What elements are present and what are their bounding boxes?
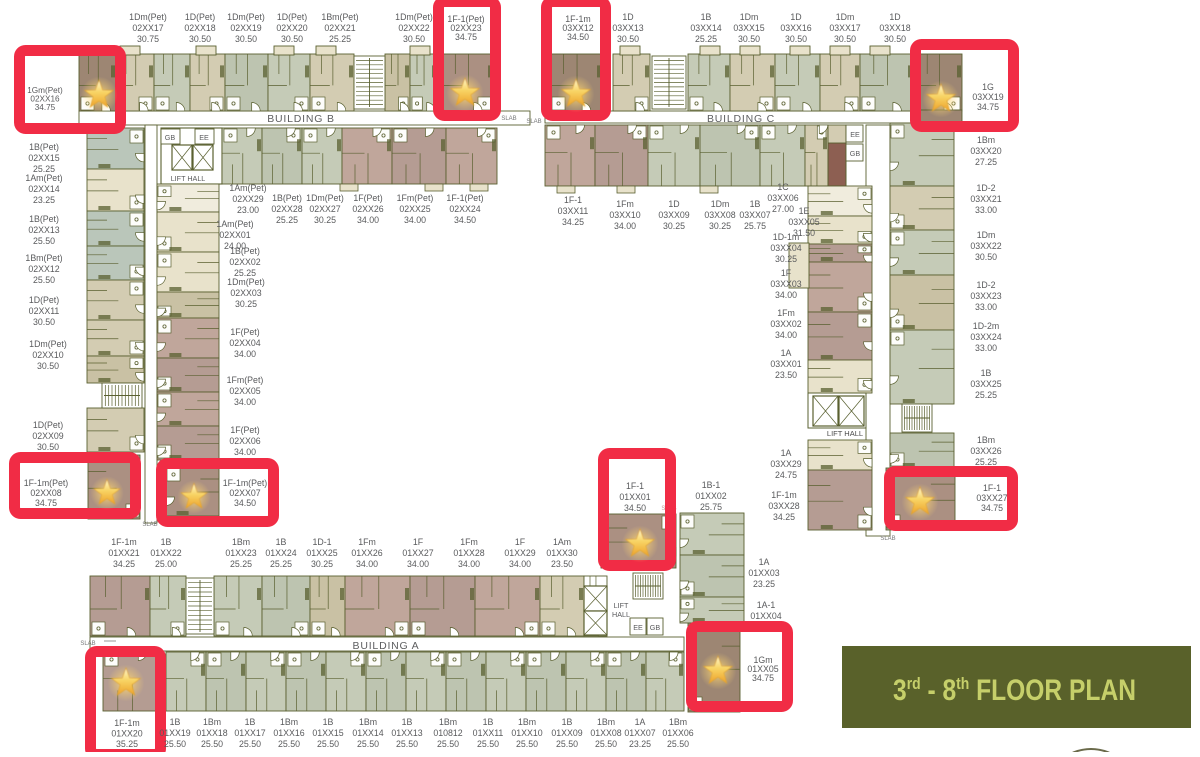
svg-text:1D(Pet): 1D(Pet) [185,12,215,22]
svg-text:25.25: 25.25 [270,559,292,569]
svg-text:02XX19: 02XX19 [230,23,261,33]
svg-text:03XX07: 03XX07 [739,210,770,220]
svg-text:1F(Pet): 1F(Pet) [230,425,259,435]
svg-text:30.50: 30.50 [281,34,303,44]
svg-text:25.50: 25.50 [33,275,55,285]
svg-text:34.00: 34.00 [234,447,256,457]
svg-text:1Bm(Pet): 1Bm(Pet) [321,12,358,22]
svg-text:1G: 1G [982,82,994,92]
svg-text:30.50: 30.50 [884,34,906,44]
svg-text:1F: 1F [515,537,526,547]
svg-text:EE: EE [850,130,860,139]
svg-text:1Bm: 1Bm [597,717,615,727]
svg-text:34.75: 34.75 [35,498,57,508]
svg-text:03XX13: 03XX13 [612,23,643,33]
svg-text:25.50: 25.50 [33,236,55,246]
svg-text:1Bm: 1Bm [203,717,221,727]
svg-text:25.50: 25.50 [556,739,578,749]
svg-text:01XX20: 01XX20 [111,729,142,739]
svg-text:25.50: 25.50 [278,739,300,749]
svg-text:02XX05: 02XX05 [229,386,260,396]
svg-text:30.25: 30.25 [311,559,333,569]
svg-text:3rd - 8th FLOOR PLAN: 3rd - 8th FLOOR PLAN [893,673,1136,707]
svg-text:03XX22: 03XX22 [970,241,1001,251]
svg-text:03XX16: 03XX16 [780,23,811,33]
svg-text:1Am(Pet): 1Am(Pet) [229,183,266,193]
svg-text:1Dm: 1Dm [977,230,996,240]
svg-text:1Am(Pet): 1Am(Pet) [25,173,62,183]
svg-text:LIFT HALL: LIFT HALL [171,174,206,183]
svg-text:BUILDING C: BUILDING C [707,113,775,125]
svg-text:02XX09: 02XX09 [32,431,63,441]
svg-text:1D: 1D [790,12,801,22]
svg-text:01XX30: 01XX30 [546,548,577,558]
svg-text:1Dm(Pet): 1Dm(Pet) [227,277,265,287]
svg-text:1Dm(Pet): 1Dm(Pet) [306,193,344,203]
svg-text:30.25: 30.25 [235,299,257,309]
svg-text:1F-1m(Pet): 1F-1m(Pet) [24,478,69,488]
svg-text:34.00: 34.00 [509,559,531,569]
svg-text:1F-1: 1F-1 [626,481,644,491]
svg-text:03XX08: 03XX08 [704,210,735,220]
svg-text:34.00: 34.00 [356,559,378,569]
svg-text:1Fm(Pet): 1Fm(Pet) [397,193,434,203]
svg-text:1D-2m: 1D-2m [973,321,999,331]
svg-text:25.50: 25.50 [667,739,689,749]
svg-text:01XX22: 01XX22 [150,548,181,558]
svg-text:1Dm(Pet): 1Dm(Pet) [227,12,265,22]
svg-text:1Bm: 1Bm [518,717,536,727]
svg-text:1Bm: 1Bm [439,717,457,727]
svg-text:01XX04: 01XX04 [750,611,781,621]
svg-text:25.50: 25.50 [396,739,418,749]
svg-text:1A: 1A [781,448,792,458]
svg-text:1B: 1B [701,12,712,22]
svg-text:02XX22: 02XX22 [398,23,429,33]
svg-text:01XX26: 01XX26 [351,548,382,558]
svg-text:34.50: 34.50 [567,32,589,42]
svg-text:34.00: 34.00 [614,221,636,231]
svg-text:1D-1m: 1D-1m [773,232,799,242]
svg-text:02XX12: 02XX12 [28,264,59,274]
svg-text:34.25: 34.25 [773,512,795,522]
svg-text:1B-1: 1B-1 [702,480,721,490]
svg-text:1A-1: 1A-1 [757,600,776,610]
svg-text:1B: 1B [750,199,761,209]
svg-text:23.50: 23.50 [551,559,573,569]
svg-text:01XX14: 01XX14 [352,728,383,738]
svg-text:02XX13: 02XX13 [28,225,59,235]
svg-text:03XX03: 03XX03 [770,279,801,289]
svg-text:33.00: 33.00 [975,343,997,353]
svg-text:27.25: 27.25 [975,157,997,167]
svg-text:03XX10: 03XX10 [609,210,640,220]
svg-text:1Dm: 1Dm [711,199,730,209]
svg-text:01XX18: 01XX18 [196,728,227,738]
svg-text:34.50: 34.50 [234,498,256,508]
svg-text:30.25: 30.25 [775,254,797,264]
svg-text:1B(Pet): 1B(Pet) [230,246,260,256]
svg-text:1F-1m(Pet): 1F-1m(Pet) [223,478,268,488]
svg-text:35.25: 35.25 [116,739,138,749]
svg-text:1Bm: 1Bm [280,717,298,727]
svg-text:02XX07: 02XX07 [229,488,260,498]
svg-text:25.50: 25.50 [477,739,499,749]
svg-text:34.00: 34.00 [234,397,256,407]
svg-text:1D: 1D [889,12,900,22]
svg-text:02XX20: 02XX20 [276,23,307,33]
svg-text:03XX21: 03XX21 [970,194,1001,204]
svg-text:1D(Pet): 1D(Pet) [29,295,59,305]
svg-text:23.25: 23.25 [33,195,55,205]
svg-text:EE: EE [633,623,643,632]
svg-text:34.00: 34.00 [775,330,797,340]
svg-text:25.50: 25.50 [516,739,538,749]
svg-text:1F-1: 1F-1 [564,195,582,205]
svg-text:01XX08: 01XX08 [590,728,621,738]
svg-text:01XX07: 01XX07 [624,728,655,738]
svg-text:30.50: 30.50 [617,34,639,44]
svg-text:30.50: 30.50 [738,34,760,44]
svg-text:1D: 1D [622,12,633,22]
svg-text:03XX05: 03XX05 [788,217,819,227]
svg-text:1B(Pet): 1B(Pet) [29,142,59,152]
svg-text:1B: 1B [276,537,287,547]
svg-text:1Fm: 1Fm [616,199,634,209]
svg-text:02XX29: 02XX29 [232,194,263,204]
svg-text:25.00: 25.00 [155,559,177,569]
svg-text:25.75: 25.75 [700,502,722,512]
svg-text:25.75: 25.75 [744,221,766,231]
svg-text:1B: 1B [170,717,181,727]
svg-text:02XX14: 02XX14 [28,184,59,194]
svg-text:25.50: 25.50 [164,739,186,749]
svg-text:01XX10: 01XX10 [511,728,542,738]
svg-text:02XX15: 02XX15 [28,153,59,163]
svg-text:30.50: 30.50 [785,34,807,44]
svg-text:25.50: 25.50 [437,739,459,749]
svg-text:1Fm: 1Fm [460,537,478,547]
svg-text:1Fm(Pet): 1Fm(Pet) [227,375,264,385]
svg-text:02XX08: 02XX08 [30,488,61,498]
svg-text:1Dm(Pet): 1Dm(Pet) [29,339,67,349]
svg-text:33.00: 33.00 [975,205,997,215]
svg-text:01XX16: 01XX16 [273,728,304,738]
svg-text:03XX19: 03XX19 [972,92,1003,102]
svg-text:27.00: 27.00 [772,204,794,214]
svg-text:01XX02: 01XX02 [695,491,726,501]
svg-text:34.25: 34.25 [562,217,584,227]
svg-text:30.25: 30.25 [663,221,685,231]
svg-text:03XX02: 03XX02 [770,319,801,329]
svg-text:02XX24: 02XX24 [449,204,480,214]
svg-text:1Bm: 1Bm [359,717,377,727]
svg-text:1B: 1B [323,717,334,727]
svg-text:25.25: 25.25 [975,390,997,400]
svg-text:25.25: 25.25 [230,559,252,569]
svg-text:02XX10: 02XX10 [32,350,63,360]
svg-text:30.25: 30.25 [314,215,336,225]
svg-text:1C: 1C [777,182,789,192]
svg-text:25.50: 25.50 [239,739,261,749]
svg-text:25.50: 25.50 [317,739,339,749]
svg-text:30.50: 30.50 [37,442,59,452]
svg-text:01XX29: 01XX29 [504,548,535,558]
svg-text:01XX13: 01XX13 [391,728,422,738]
svg-text:1Am: 1Am [553,537,571,547]
svg-text:1F-1(Pet): 1F-1(Pet) [446,193,483,203]
svg-text:010812: 010812 [433,728,462,738]
svg-text:01XX06: 01XX06 [662,728,693,738]
svg-text:1Dm(Pet): 1Dm(Pet) [395,12,433,22]
svg-text:02XX27: 02XX27 [309,204,340,214]
svg-text:03XX11: 03XX11 [558,206,589,216]
svg-text:03XX17: 03XX17 [829,23,860,33]
svg-text:01XX09: 01XX09 [551,728,582,738]
svg-text:1B: 1B [245,717,256,727]
svg-text:01XX19: 01XX19 [159,728,190,738]
svg-text:02XX06: 02XX06 [229,436,260,446]
svg-text:1F-1: 1F-1 [983,483,1001,493]
svg-text:01XX01: 01XX01 [619,492,650,502]
svg-text:03XX20: 03XX20 [970,146,1001,156]
svg-text:01XX03: 01XX03 [748,568,779,578]
svg-text:30.50: 30.50 [189,34,211,44]
svg-text:25.25: 25.25 [276,215,298,225]
svg-text:02XX11: 02XX11 [29,306,60,316]
svg-text:03XX27: 03XX27 [976,493,1007,503]
svg-text:30.50: 30.50 [37,361,59,371]
svg-text:01XX24: 01XX24 [265,548,296,558]
svg-text:03XX06: 03XX06 [767,193,798,203]
svg-text:23.25: 23.25 [629,739,651,749]
svg-text:1B: 1B [562,717,573,727]
svg-text:02XX18: 02XX18 [184,23,215,33]
svg-text:LIFT: LIFT [614,601,629,610]
svg-text:23.25: 23.25 [753,579,775,589]
svg-text:1D(Pet): 1D(Pet) [277,12,307,22]
svg-text:1A: 1A [635,717,646,727]
svg-text:02XX25: 02XX25 [399,204,430,214]
svg-text:34.75: 34.75 [977,102,999,112]
svg-text:24.75: 24.75 [775,470,797,480]
svg-text:1F: 1F [413,537,424,547]
svg-text:34.25: 34.25 [113,559,135,569]
svg-text:03XX09: 03XX09 [658,210,689,220]
svg-text:02XX01: 02XX01 [219,230,250,240]
svg-text:02XX28: 02XX28 [271,204,302,214]
svg-text:30.75: 30.75 [137,34,159,44]
svg-text:30.50: 30.50 [403,34,425,44]
svg-text:34.00: 34.00 [404,215,426,225]
svg-text:HALL: HALL [612,610,630,619]
svg-text:34.75: 34.75 [35,103,56,112]
svg-text:1F-1m: 1F-1m [771,490,796,500]
svg-text:03XX24: 03XX24 [970,332,1001,342]
svg-text:1B: 1B [483,717,494,727]
svg-text:02XX21: 02XX21 [324,23,355,33]
svg-text:34.00: 34.00 [234,349,256,359]
svg-text:1D: 1D [668,199,679,209]
svg-text:25.50: 25.50 [595,739,617,749]
svg-text:25.25: 25.25 [329,34,351,44]
svg-text:30.50: 30.50 [235,34,257,44]
svg-text:25.50: 25.50 [201,739,223,749]
svg-text:1Bm: 1Bm [977,435,995,445]
svg-text:33.00: 33.00 [975,302,997,312]
svg-text:EE: EE [199,133,209,142]
svg-text:01XX27: 01XX27 [402,548,433,558]
svg-text:1D-1: 1D-1 [312,537,331,547]
svg-text:02XX02: 02XX02 [229,257,260,267]
svg-text:1F-1m: 1F-1m [111,537,136,547]
svg-text:BUILDING B: BUILDING B [267,113,335,125]
svg-text:30.50: 30.50 [834,34,856,44]
svg-text:01XX11: 01XX11 [473,728,504,738]
svg-text:02XX03: 02XX03 [230,288,261,298]
svg-text:1B(Pet): 1B(Pet) [29,214,59,224]
svg-text:01XX15: 01XX15 [312,728,343,738]
svg-text:34.00: 34.00 [458,559,480,569]
svg-text:SLAB: SLAB [80,641,95,647]
svg-text:01XX21: 01XX21 [108,548,139,558]
svg-text:02XX26: 02XX26 [352,204,383,214]
svg-text:34.75: 34.75 [752,673,774,683]
svg-text:25.25: 25.25 [695,34,717,44]
svg-text:1Dm: 1Dm [836,12,855,22]
svg-text:LIFT HALL: LIFT HALL [827,429,863,438]
svg-text:30.25: 30.25 [709,221,731,231]
svg-text:1B: 1B [402,717,413,727]
svg-text:BUILDING A: BUILDING A [353,640,420,652]
svg-text:1D(Pet): 1D(Pet) [33,420,63,430]
svg-text:03XX04: 03XX04 [770,243,801,253]
svg-text:01XX23: 01XX23 [225,548,256,558]
svg-text:1F(Pet): 1F(Pet) [230,327,259,337]
svg-text:1Bm: 1Bm [232,537,250,547]
svg-text:34.75: 34.75 [455,32,477,42]
svg-text:30.50: 30.50 [975,252,997,262]
svg-text:02XX17: 02XX17 [132,23,163,33]
svg-text:01XX17: 01XX17 [234,728,265,738]
svg-text:03XX18: 03XX18 [879,23,910,33]
svg-text:34.00: 34.00 [357,215,379,225]
svg-text:1Bm: 1Bm [669,717,687,727]
svg-text:1A: 1A [781,348,792,358]
svg-text:SLAB: SLAB [501,116,516,122]
svg-text:03XX29: 03XX29 [770,459,801,469]
svg-text:1D-2: 1D-2 [976,183,995,193]
svg-text:1D-2: 1D-2 [976,280,995,290]
svg-text:1Bm: 1Bm [977,135,995,145]
svg-text:1B: 1B [161,537,172,547]
svg-text:34.75: 34.75 [981,503,1003,513]
svg-text:1B: 1B [981,368,992,378]
svg-text:02XX04: 02XX04 [229,338,260,348]
svg-text:1Dm(Pet): 1Dm(Pet) [129,12,167,22]
svg-text:SLAB: SLAB [880,536,895,542]
svg-text:03XX25: 03XX25 [970,379,1001,389]
svg-text:03XX28: 03XX28 [768,501,799,511]
svg-text:03XX23: 03XX23 [970,291,1001,301]
svg-text:1Bm(Pet): 1Bm(Pet) [25,253,62,263]
svg-text:23.50: 23.50 [775,370,797,380]
svg-text:SLAB: SLAB [526,119,541,125]
svg-text:1Am(Pet): 1Am(Pet) [216,219,253,229]
svg-text:23.00: 23.00 [237,205,259,215]
svg-text:1Fm: 1Fm [777,308,795,318]
svg-text:SLAB: SLAB [142,522,157,528]
svg-text:1F(Pet): 1F(Pet) [353,193,382,203]
svg-text:1A: 1A [759,557,770,567]
svg-text:03XX01: 03XX01 [770,359,801,369]
svg-text:30.50: 30.50 [33,317,55,327]
svg-text:01XX28: 01XX28 [453,548,484,558]
svg-text:1E: 1E [799,206,810,216]
svg-text:GB: GB [165,133,176,142]
svg-text:1Fm: 1Fm [358,537,376,547]
svg-text:GB: GB [650,623,661,632]
svg-text:01XX25: 01XX25 [306,548,337,558]
svg-text:34.00: 34.00 [775,290,797,300]
svg-text:1Dm: 1Dm [740,12,759,22]
svg-text:03XX26: 03XX26 [970,446,1001,456]
svg-text:34.50: 34.50 [624,503,646,513]
svg-text:1B(Pet): 1B(Pet) [272,193,302,203]
svg-text:34.50: 34.50 [454,215,476,225]
svg-text:03XX14: 03XX14 [690,23,721,33]
svg-text:25.25: 25.25 [975,457,997,467]
svg-text:03XX15: 03XX15 [733,23,764,33]
svg-text:25.50: 25.50 [357,739,379,749]
svg-text:GB: GB [850,149,861,158]
svg-text:1F: 1F [781,268,792,278]
svg-text:1F-1m: 1F-1m [114,718,139,728]
svg-text:34.00: 34.00 [407,559,429,569]
